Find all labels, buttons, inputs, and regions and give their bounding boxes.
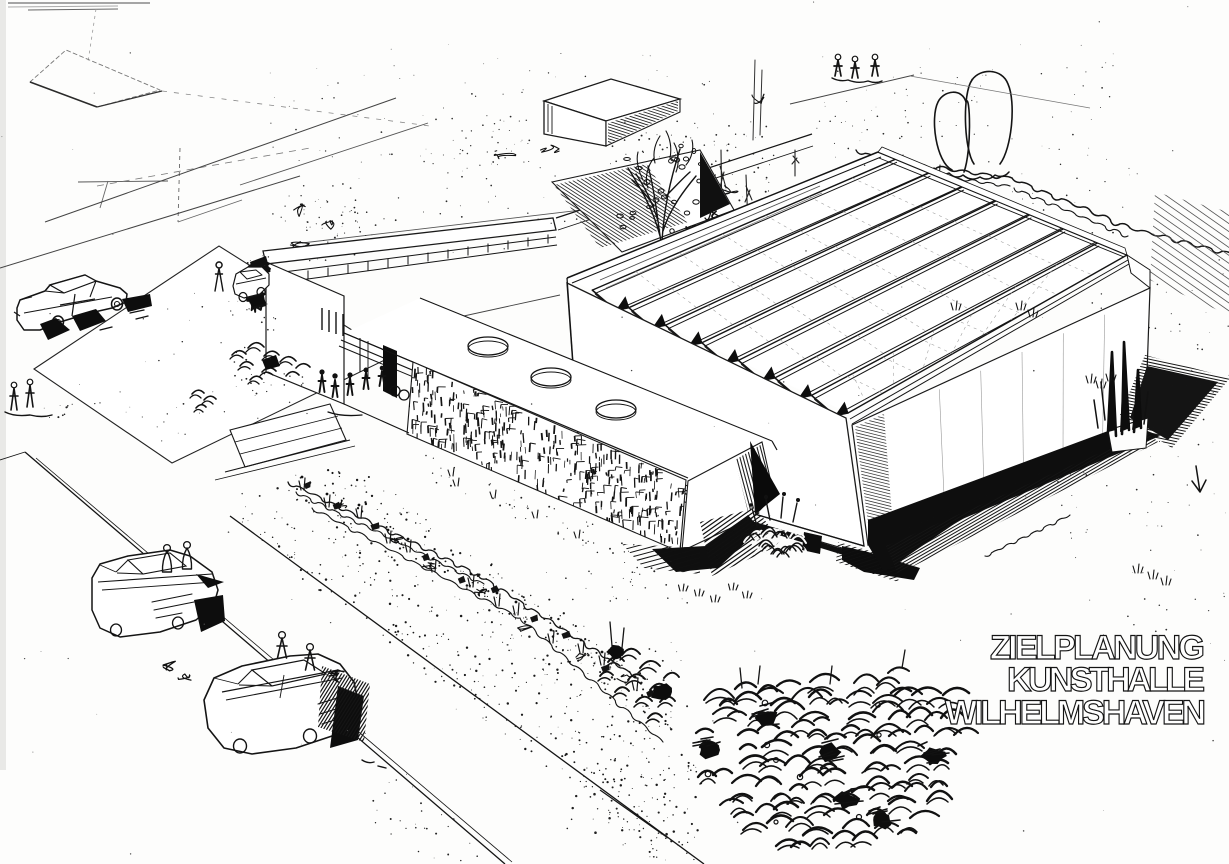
svg-text:WILHELMSHAVEN: WILHELMSHAVEN xyxy=(945,694,1206,732)
